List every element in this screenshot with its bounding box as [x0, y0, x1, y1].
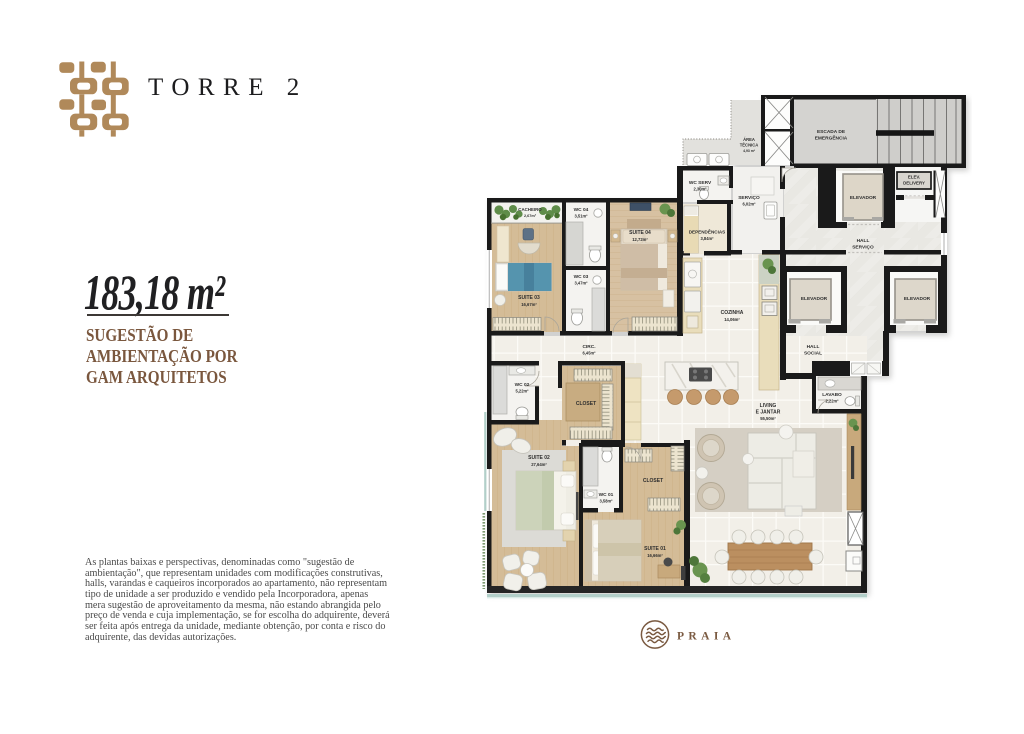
svg-text:27,64m²: 27,64m² [531, 462, 547, 467]
svg-text:LAVABO: LAVABO [822, 392, 842, 398]
svg-text:PRAIA: PRAIA [677, 630, 735, 642]
svg-text:DELIVERY: DELIVERY [903, 181, 925, 186]
svg-text:12,72m²: 12,72m² [632, 237, 648, 242]
svg-text:TÉCNICA: TÉCNICA [740, 143, 759, 148]
svg-text:WC 04: WC 04 [574, 207, 589, 213]
svg-text:WC 02: WC 02 [515, 382, 530, 388]
svg-text:LIVING: LIVING [760, 403, 777, 409]
svg-text:SUITE 01: SUITE 01 [644, 546, 666, 552]
svg-text:6,45m²: 6,45m² [583, 351, 597, 356]
svg-text:55,50m²: 55,50m² [760, 416, 776, 421]
svg-text:HALL: HALL [857, 238, 870, 244]
svg-text:ÁREA: ÁREA [743, 137, 755, 142]
svg-text:16,66m²: 16,66m² [647, 553, 663, 558]
svg-text:CLOSET: CLOSET [576, 401, 596, 407]
svg-text:DEPENDÊNCIAS: DEPENDÊNCIAS [689, 228, 726, 235]
svg-text:CIRC.: CIRC. [582, 344, 595, 350]
svg-text:CACHEIRO: CACHEIRO [518, 207, 542, 212]
svg-text:WC 03: WC 03 [574, 274, 589, 280]
svg-text:ESCADA DE: ESCADA DE [817, 129, 846, 135]
svg-text:HALL: HALL [807, 344, 820, 350]
svg-text:ELEVADOR: ELEVADOR [904, 296, 931, 302]
svg-text:COZINHA: COZINHA [721, 310, 744, 316]
svg-text:3,58m²: 3,58m² [600, 499, 614, 504]
svg-text:14,06m²: 14,06m² [724, 317, 740, 322]
svg-text:5,22m²: 5,22m² [516, 389, 530, 394]
svg-text:SUITE 02: SUITE 02 [528, 455, 550, 461]
svg-text:SUITE 04: SUITE 04 [629, 230, 651, 236]
svg-text:6,02m²: 6,02m² [743, 202, 757, 207]
svg-text:E JANTAR: E JANTAR [756, 410, 781, 416]
svg-text:SERVIÇO: SERVIÇO [738, 195, 760, 201]
svg-text:WC 01: WC 01 [599, 492, 614, 498]
svg-text:2,30m²: 2,30m² [694, 187, 708, 192]
svg-text:2,22m²: 2,22m² [826, 399, 840, 404]
svg-text:3,84m²: 3,84m² [701, 236, 715, 241]
svg-text:ELEV.: ELEV. [908, 175, 920, 180]
svg-text:SERVIÇO: SERVIÇO [852, 245, 874, 251]
svg-text:3,51m²: 3,51m² [575, 214, 589, 219]
svg-text:16,67m²: 16,67m² [521, 302, 537, 307]
svg-text:2,67m²: 2,67m² [524, 214, 537, 218]
svg-text:WC SERV: WC SERV [689, 180, 712, 186]
svg-text:ELEVADOR: ELEVADOR [850, 195, 877, 201]
svg-text:SOCIAL: SOCIAL [804, 351, 822, 357]
svg-text:4,93 m²: 4,93 m² [743, 149, 756, 153]
svg-text:ELEVADOR: ELEVADOR [801, 296, 828, 302]
svg-text:SUITE 03: SUITE 03 [518, 295, 540, 301]
svg-text:CLOSET: CLOSET [643, 478, 663, 484]
svg-text:3,47m²: 3,47m² [575, 281, 589, 286]
